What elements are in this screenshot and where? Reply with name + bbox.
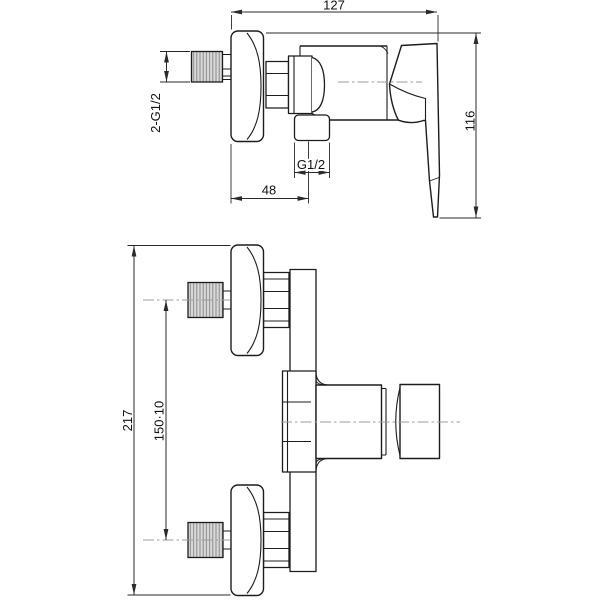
- front-view: 217 150·10: [120, 245, 460, 596]
- outlet-port: [295, 115, 330, 141]
- side-view: 127 116 2-G1/2 G1/2 48: [148, 0, 481, 218]
- connection-nut: [266, 62, 289, 109]
- dim-label-217: 217: [120, 410, 135, 432]
- technical-drawing-canvas: 127 116 2-G1/2 G1/2 48: [0, 0, 600, 600]
- dim-outlet-thread: G1/2: [295, 142, 330, 204]
- dim-outlet-offset: 48: [231, 144, 309, 204]
- dim-label-g12: G1/2: [297, 157, 325, 172]
- dim-inlet-thread: 2-G1/2: [148, 52, 190, 133]
- dim-label-2-g12: 2-G1/2: [148, 93, 163, 133]
- lower-connection-nut: [264, 513, 290, 568]
- shower-mixer-dimension-drawing: 127 116 2-G1/2 G1/2 48: [0, 0, 600, 600]
- dim-label-116: 116: [463, 111, 478, 132]
- inlet-thread: [192, 52, 232, 83]
- handle-end: [382, 385, 440, 459]
- lever-handle: [390, 44, 440, 218]
- dim-label-150-10: 150·10: [152, 401, 167, 441]
- lower-wall-plate: [231, 485, 264, 596]
- upper-connection-nut: [264, 273, 290, 328]
- dim-label-127: 127: [323, 0, 345, 13]
- dim-label-48: 48: [262, 183, 276, 198]
- wall-plate: [231, 31, 264, 142]
- valve-connector: [289, 56, 325, 114]
- upper-wall-plate: [231, 245, 264, 356]
- dim-connection-spacing: 150·10: [152, 300, 169, 540]
